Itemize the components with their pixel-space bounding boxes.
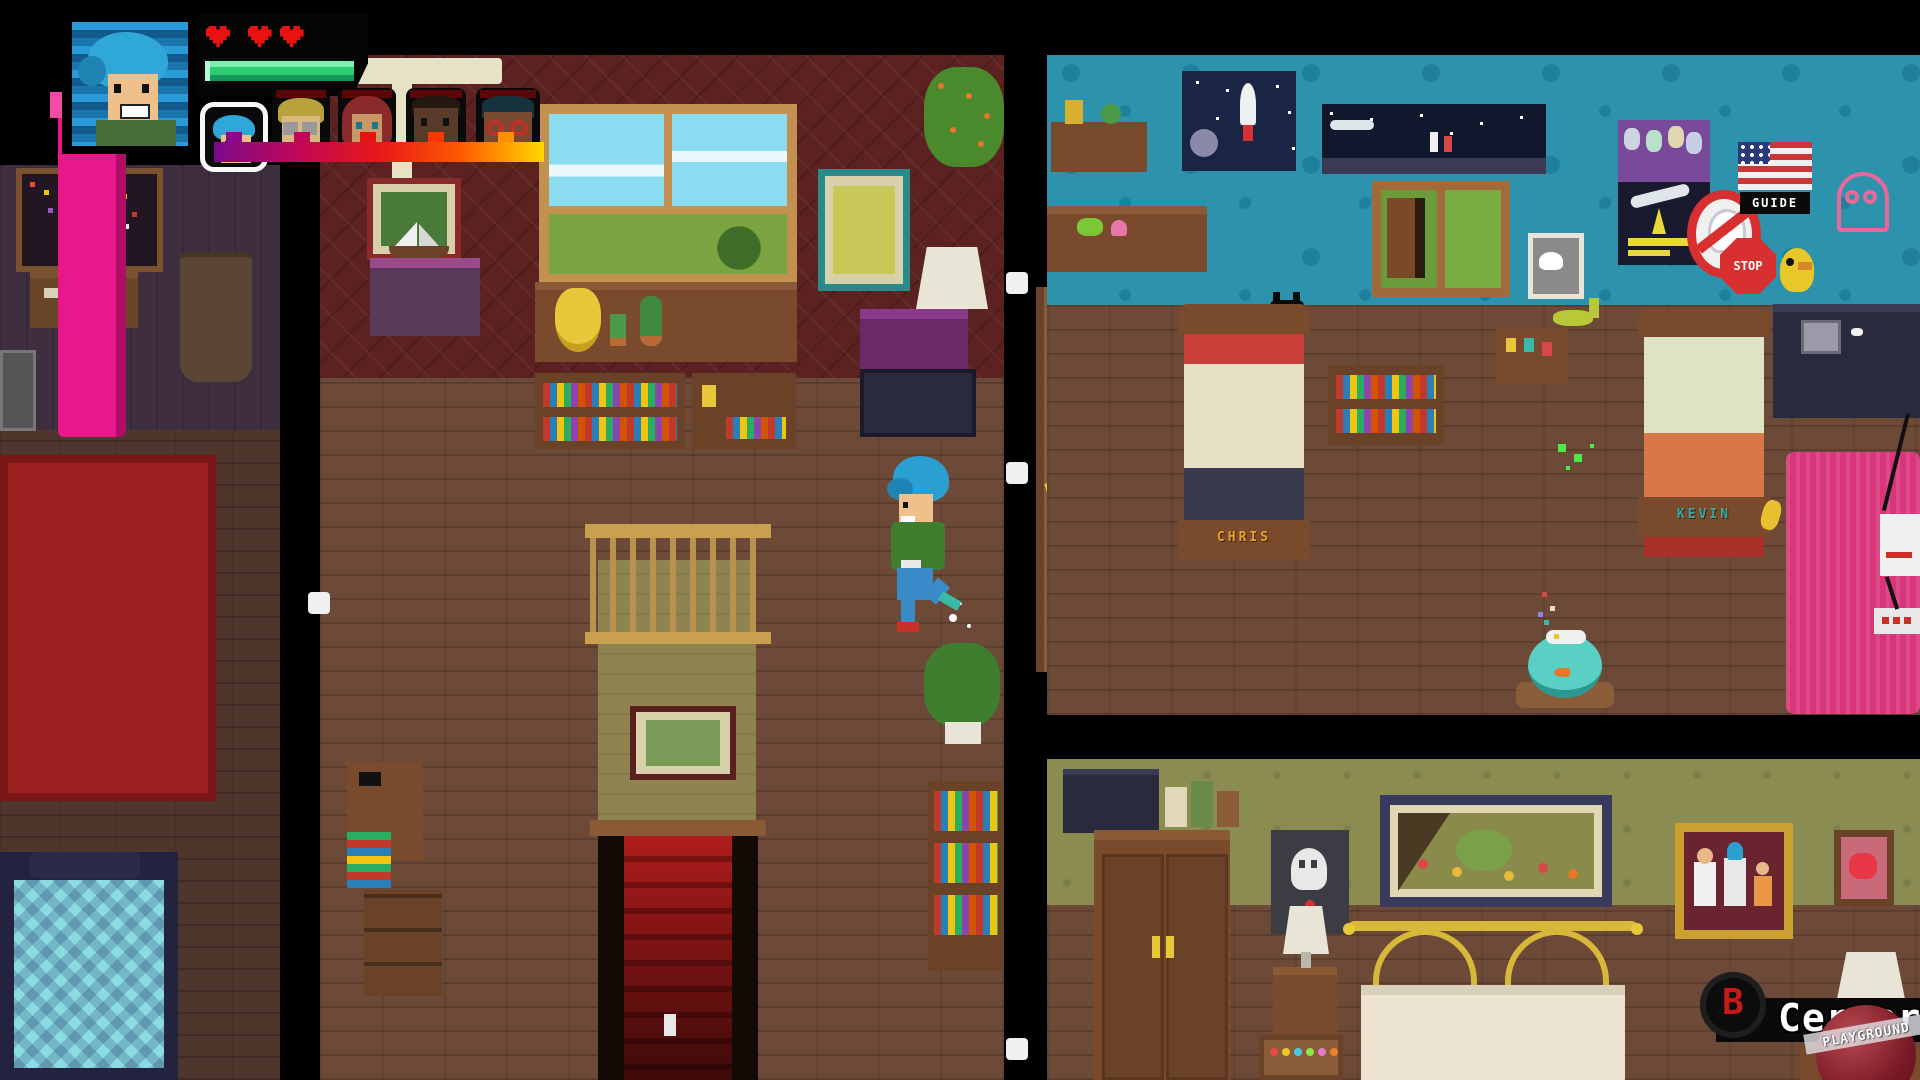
open-door [1387,198,1425,278]
figure-eyes [1299,860,1305,868]
clothes-stack [1217,791,1239,827]
bed-footboard: CHRIS [1178,520,1310,560]
flag-canton [1738,142,1770,164]
fruit-tree [924,67,1004,167]
indoor-plant [924,643,1000,727]
fishbowl [1528,634,1602,698]
tall-bookshelf [928,781,1004,971]
poster-title-line [1628,238,1692,246]
bed-name-kevin: KEVIN [1638,507,1770,522]
family-head [1697,848,1713,864]
window-pane-field [549,214,787,274]
window-pane-sky-left [549,114,664,206]
portrait-eyes [114,84,121,93]
heart-icon [280,26,304,47]
ghost-goggle [1845,190,1859,204]
computer-desk [1773,304,1920,418]
teal-framed-picture [818,169,910,291]
slot-cap [276,90,326,98]
white-lamp-shade [916,247,988,309]
guide-banner-label: GUIDE [1752,196,1798,210]
red-rug [0,455,216,801]
poster-ghost-figure [1291,848,1327,890]
book-row [934,895,998,935]
small-red-painting [1834,830,1894,906]
player-shoe [897,622,919,632]
stairs-opening [598,836,758,1080]
left-lamp-pole [1301,952,1311,968]
stairs-shadow [624,836,732,1080]
art-bush [1456,829,1512,871]
slime-trail [1558,444,1566,452]
us-flag-poster [1738,142,1812,190]
banister-posts [590,538,766,638]
navy-chest [1063,769,1159,833]
small-plant [610,314,626,346]
hearts-row [206,26,356,48]
close-button[interactable]: B [1700,972,1766,1038]
slime-toy [1077,218,1103,236]
computer-mouse [1851,328,1863,336]
left-lamp-shade [1283,906,1329,954]
wardrobe-door[interactable] [1102,854,1164,1080]
ship-model [385,222,455,258]
poster-sand [1322,158,1546,174]
bed-sheet [1644,337,1764,433]
game-console [1880,514,1920,576]
door-marker [1006,272,1028,294]
book-row [726,417,786,439]
poster-title-line [1628,250,1670,256]
dino-neck [1589,298,1599,318]
game-controller [1874,608,1920,634]
ship-sail2 [419,224,439,246]
dino-body [1553,310,1593,326]
book-row [1336,375,1436,399]
bed-rail [1349,921,1637,931]
health-bar [202,58,352,84]
b-key-icon: B [1700,982,1766,1023]
controller-buttons [1882,617,1889,624]
tree-fruit [938,83,944,89]
bat-ears [1273,292,1280,302]
bed-blanket [1184,468,1304,520]
run-dust [949,614,957,622]
window-pane-yard-left [1381,190,1437,288]
goldfish [1554,668,1570,677]
player-character [885,452,975,632]
bed-blanket [1644,433,1764,497]
painting-art [646,720,720,766]
door-marker [1006,1038,1028,1060]
player-eye [903,502,908,508]
family-figure [1694,862,1716,906]
cat-picture [1528,233,1584,299]
pool-table-cushion [30,852,140,878]
stairwell-painting [630,706,736,780]
duck-eye [1786,258,1794,266]
ghost-goggle [1863,190,1877,204]
purple-dresser [860,309,968,373]
family-figure [1724,858,1746,906]
poster-stars [1330,112,1333,115]
candy-crate [1259,1035,1343,1080]
bed-post-knobs [1343,923,1355,935]
stop-sign-label: STOP [1734,259,1763,273]
bed-pillow [1184,334,1304,364]
painting-art [1849,853,1877,879]
mini-eyes [421,118,427,126]
wall-shelf-trophies [1051,122,1147,172]
bed-headboard [1178,304,1310,334]
book-row [1336,409,1436,433]
space-poster [1182,71,1296,171]
big-landscape-painting [1380,795,1612,907]
pool-table [0,852,178,1080]
pink-egg [1111,220,1127,236]
backyard-window [1372,181,1510,297]
headboard-arc [1373,929,1477,987]
player-shoe-raised [938,591,962,611]
yellow-lamp [555,288,601,352]
party-gradient-bar [214,142,544,162]
dino-toy [1553,298,1607,330]
candy-dots [1270,1048,1278,1056]
shelf-plant [1101,104,1121,124]
book-stack [347,832,391,888]
bookshelf-left [535,373,685,449]
plant-pot [945,722,981,744]
window-pane-sky-right [672,114,787,206]
wardrobe-handles [1152,936,1160,958]
cream-lamp-bar [350,58,502,84]
headboard-arc [1505,929,1609,987]
pool-table-felt [14,880,164,1068]
dark-shelf [860,369,976,437]
ship-cabinet [370,258,480,336]
ship-hull [389,246,449,258]
mattress [1361,985,1625,1080]
poster-wave [1330,120,1374,130]
poster-planet [1190,129,1218,157]
window [539,104,797,284]
bed-sheet [1184,364,1304,468]
picture-art [833,186,895,274]
player-front-leg [901,598,915,624]
corkboard-pins [30,182,35,187]
family-head-bluehair [1727,842,1743,860]
kids-desk [1047,206,1207,272]
clothes-stack [1165,787,1187,827]
cactus-plant [640,296,662,346]
poster-stars [1196,81,1199,84]
small-wall-shelf [1496,328,1568,384]
poster-figure [1430,132,1438,152]
cat-shape [1539,252,1563,270]
wall-photo-frames [0,350,36,431]
hud-portrait [72,22,188,146]
gold-trophy [1065,100,1083,124]
stop-sign: STOP [1720,238,1776,294]
bed-kevin: KEVIN [1638,309,1770,567]
calculator [359,772,381,786]
stairs-door-frame [590,820,766,836]
folded-clothes [1165,781,1239,835]
drawer-cabinet [364,890,442,996]
fishbowl-rim [1546,630,1586,644]
kids-bookshelf [1328,365,1444,445]
portrait-smile [120,104,150,119]
portrait-hair-side [78,56,106,86]
guide-banner: GUIDE [1740,192,1810,214]
stairs-figure [664,1014,676,1036]
family-head [1756,862,1769,875]
console-slot [1886,552,1912,558]
floor-clutter [1542,592,1547,597]
rocket-flame [1243,125,1253,141]
hud-portrait-frame [62,14,198,154]
banister-mid-rail [585,632,771,644]
poster-figure [1444,136,1452,152]
bed-name-chris: CHRIS [1178,530,1310,545]
banister-top-rail [585,524,771,538]
duck-toy [1780,248,1814,292]
computer-monitor [1801,320,1841,354]
hanging-coat [180,252,252,382]
family-photo [1675,823,1793,939]
health-bar-fill [205,61,354,81]
brass-bed [1337,921,1649,1080]
family-figure-child [1754,876,1772,906]
art-fruit [1418,859,1428,869]
book-row [543,383,677,407]
painting-art [1398,813,1594,889]
wardrobe [1094,830,1230,1080]
bed-footboard: KEVIN [1638,497,1770,537]
book-row [543,417,677,441]
controller-cable [1885,576,1899,610]
pink-ghost-decal [1837,172,1889,232]
art-shadow-corner [1398,813,1450,891]
window-pane-yard-right [1445,190,1501,288]
book-row [934,791,998,831]
poster-rocket [1240,83,1256,125]
shelf-items [1506,338,1516,352]
beach-poster [1322,104,1546,174]
trophy [702,385,716,407]
pink-bed [1786,452,1920,714]
bed-headboard [1638,309,1770,337]
heart-icon [248,26,272,47]
book-row [934,843,998,883]
ship-sail [395,222,417,246]
bookshelf-right [692,373,796,449]
heart-icon [206,26,230,47]
bed-base [1644,537,1764,557]
bed-chris: CHRIS [1178,304,1310,566]
mini-eyes [356,122,362,129]
door-marker [1006,462,1028,484]
wardrobe-door[interactable] [1166,854,1228,1080]
door-marker [308,592,330,614]
duck-beak [1798,262,1812,270]
game-screen: TOXIC [0,0,1920,1080]
hud-status-panel [196,14,368,96]
poster-faces [1624,128,1640,150]
portrait-jacket [96,120,176,146]
clothes-stack [1191,781,1213,827]
